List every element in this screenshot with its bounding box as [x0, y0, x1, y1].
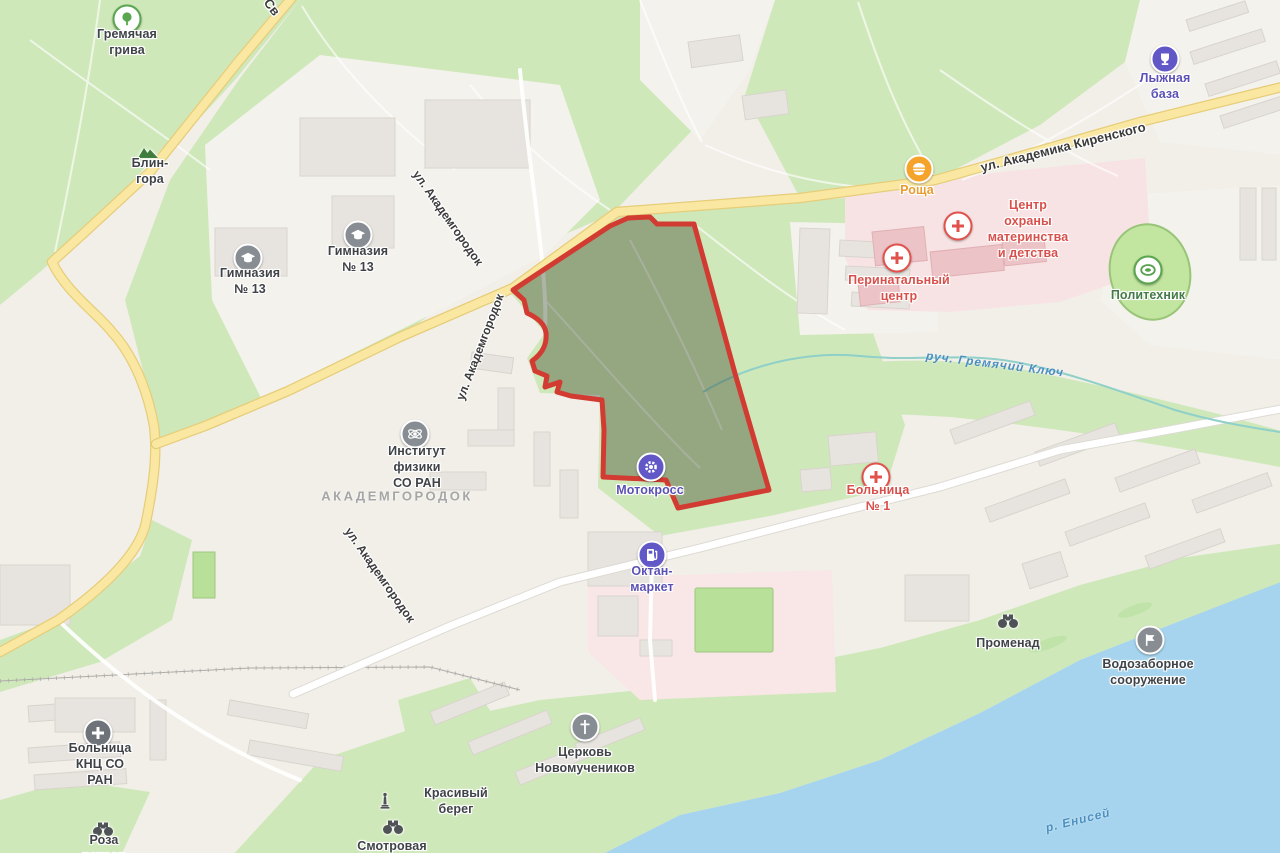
district-label-akademgorodok: АКАДЕМГОРОДОК [321, 489, 473, 504]
map-viewport[interactable]: ул. Академика Киренскогоул. Академгородо… [0, 0, 1280, 853]
map-canvas [0, 0, 1280, 853]
